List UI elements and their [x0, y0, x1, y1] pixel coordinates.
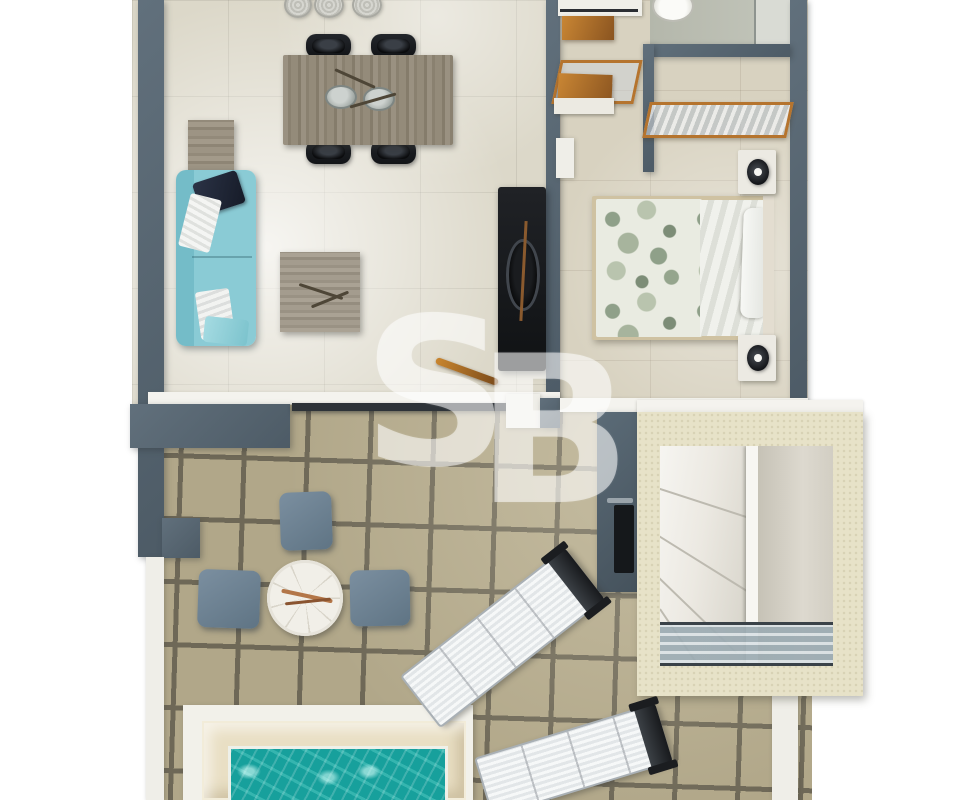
sofa	[176, 170, 256, 346]
west-wall	[138, 0, 164, 557]
west-wall-step	[162, 518, 200, 558]
sliding-door-panel	[506, 394, 540, 428]
chair-seat	[377, 145, 410, 159]
armchair-cushion	[356, 576, 405, 621]
outdoor-armchair	[197, 569, 261, 629]
shelf-rail	[560, 9, 638, 12]
outdoor-round-table	[267, 560, 343, 636]
wardrobe-drawer	[562, 16, 614, 40]
stairwell	[660, 446, 833, 666]
lamp-finial	[754, 354, 762, 362]
glass-console	[642, 102, 794, 138]
terrace-storage-unit	[597, 412, 638, 592]
terrace-west-parapet	[146, 557, 164, 800]
floor-plan-render: SB	[0, 0, 958, 800]
shower-tray	[754, 0, 792, 46]
east-wall	[790, 0, 807, 402]
outdoor-armchair	[350, 569, 411, 626]
chair-seat	[377, 39, 410, 53]
armchair-cushion	[203, 575, 255, 623]
bedroom-door-leaf	[556, 138, 574, 178]
coffee-table	[280, 252, 360, 332]
terrace-east-parapet	[772, 694, 798, 800]
table-lamp	[747, 159, 769, 185]
sofa-throw-white	[178, 193, 222, 253]
sofa-seam	[192, 256, 252, 258]
bed-floral-duvet	[596, 199, 702, 337]
luggage-rack-base	[554, 98, 614, 114]
center-partition-wall	[546, 0, 560, 410]
stair-glass-railing	[660, 622, 833, 666]
nightstand	[738, 335, 776, 381]
tv-console	[498, 187, 546, 371]
table-lamp	[747, 345, 769, 371]
wardrobe-shelf	[558, 0, 642, 16]
bed-headboard	[763, 196, 774, 340]
chair-seat	[312, 145, 345, 159]
south-wall	[130, 404, 290, 448]
sliding-door-track	[292, 403, 514, 411]
lamp-finial	[754, 168, 762, 176]
chair-seat	[312, 39, 345, 53]
storage-handle	[607, 498, 633, 503]
nightstand	[738, 150, 776, 194]
swimming-pool-water	[228, 746, 448, 800]
dining-table	[283, 55, 453, 145]
armchair-cushion	[285, 497, 327, 544]
south-wall-stub	[540, 398, 560, 428]
outdoor-armchair	[279, 491, 333, 551]
storage-door	[614, 505, 634, 573]
sofa-pillow-teal	[203, 316, 249, 346]
bathroom-wall-horizontal	[643, 44, 790, 57]
